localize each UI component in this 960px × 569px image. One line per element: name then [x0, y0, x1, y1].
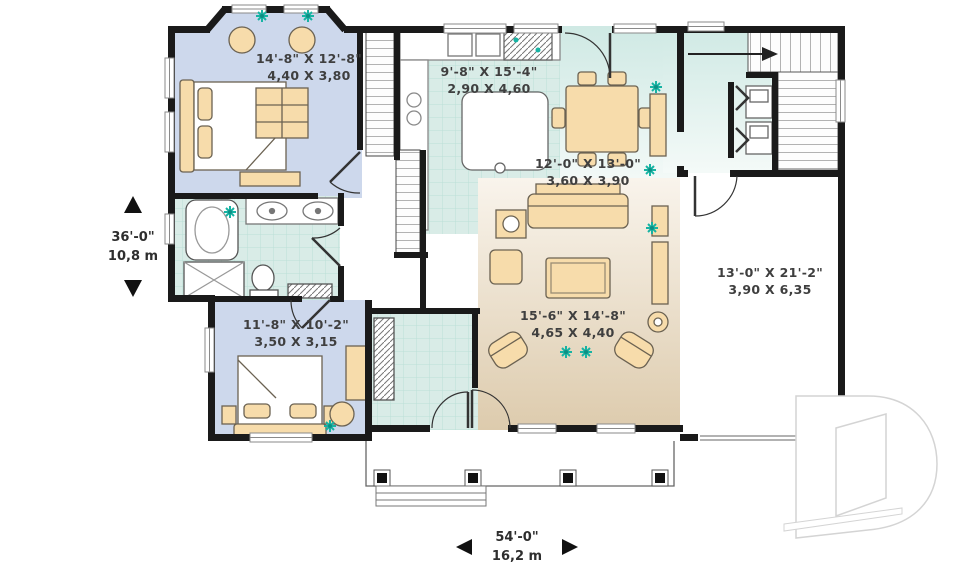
window: [284, 5, 318, 13]
nightstand-left: [222, 406, 236, 424]
window: [165, 58, 174, 98]
stairs-center-top: [366, 30, 394, 156]
dining-metric: 3,60 X 3,90: [535, 172, 641, 189]
overall-width-label: 54'-0" 16,2 m: [492, 528, 542, 566]
dining-imperial: 12'-0" X 13'-0": [535, 155, 641, 172]
window: [205, 328, 214, 372]
linen-closet: [288, 284, 332, 298]
window: [514, 24, 558, 33]
porch-columns: [374, 470, 668, 486]
bedroom1-imperial: 14'-8" X 12'-8": [256, 50, 362, 67]
dining-set: [552, 72, 652, 166]
media-unit: [652, 242, 668, 304]
window: [165, 214, 174, 244]
garage-imperial: 13'-0" X 21'-2": [717, 264, 823, 281]
window: [444, 24, 506, 33]
garage-metric: 3,90 X 6,35: [717, 281, 823, 298]
arrow-down-icon: [124, 280, 142, 297]
living-metric: 4,65 X 4,40: [520, 324, 626, 341]
bed-2: [234, 356, 326, 437]
depth-imperial: 36'-0": [108, 228, 158, 247]
round-table: [648, 312, 668, 332]
bedroom1-metric: 4,40 X 3,80: [256, 67, 362, 84]
drummond-d-watermark-logo: [784, 396, 937, 538]
dresser-2: [346, 346, 366, 400]
bedroom2-dimensions-label: 11'-8" X 10'-2" 3,50 X 3,15: [243, 316, 349, 350]
garage-dimensions-label: 13'-0" X 21'-2" 3,90 X 6,35: [717, 264, 823, 298]
width-imperial: 54'-0": [492, 528, 542, 547]
stairs-foyer-lower: [778, 72, 838, 170]
stove: [504, 30, 552, 60]
window: [597, 424, 635, 433]
bedroom2-imperial: 11'-8" X 10'-2": [243, 316, 349, 333]
living-imperial: 15'-6" X 14'-8": [520, 307, 626, 324]
depth-metric: 10,8 m: [108, 247, 158, 266]
arrow-up-icon: [124, 196, 142, 213]
dresser-master: [256, 88, 308, 138]
vanity-sinks: [246, 198, 338, 224]
overall-depth-label: 36'-0" 10,8 m: [108, 228, 158, 266]
shower: [184, 262, 244, 298]
window: [250, 433, 312, 442]
stairs-foyer-upper: [748, 32, 838, 72]
kitchen-dimensions-label: 9'-8" X 15'-4" 2,90 X 4,60: [440, 63, 537, 97]
bedroom2-metric: 3,50 X 3,15: [243, 333, 349, 350]
window: [232, 5, 266, 13]
side-table: [496, 210, 526, 238]
dining-dimensions-label: 12'-0" X 13'-0" 3,60 X 3,90: [535, 155, 641, 189]
bench: [240, 172, 300, 186]
kitchen-metric: 2,90 X 4,60: [440, 80, 537, 97]
window: [836, 80, 845, 122]
stairs-center: [396, 150, 420, 254]
window: [165, 112, 174, 152]
window: [614, 24, 656, 33]
width-metric: 16,2 m: [492, 547, 542, 566]
bedroom1-dimensions-label: 14'-8" X 12'-8" 4,40 X 3,80: [256, 50, 362, 84]
wardrobe: [374, 318, 394, 400]
sofa: [528, 184, 628, 228]
window: [518, 424, 556, 433]
coffee-table: [546, 258, 610, 298]
window: [688, 22, 724, 31]
floor-plan-canvas: 14'-8" X 12'-8" 4,40 X 3,80 9'-8" X 15'-…: [0, 0, 960, 569]
kitchen-imperial: 9'-8" X 15'-4": [440, 63, 537, 80]
porch: [366, 441, 674, 506]
porch-steps: [376, 486, 486, 506]
armchair: [490, 250, 522, 284]
living-dimensions-label: 15'-6" X 14'-8" 4,65 X 4,40: [520, 307, 626, 341]
arrow-right-icon: [562, 539, 578, 555]
arrow-left-icon: [456, 539, 472, 555]
buffet: [650, 94, 666, 156]
bay-chair-1: [229, 27, 255, 53]
